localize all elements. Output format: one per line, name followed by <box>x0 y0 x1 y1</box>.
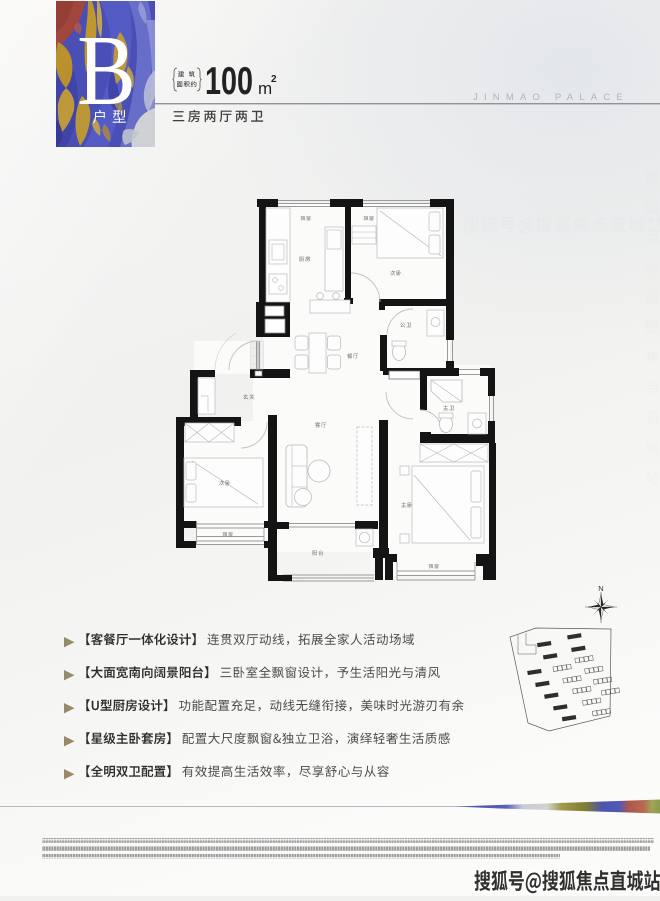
svg-text:JINMAO PALACE: JINMAO PALACE <box>473 92 629 103</box>
svg-text:100: 100 <box>205 60 253 103</box>
svg-text:2: 2 <box>271 74 277 85</box>
svg-text:B: B <box>77 15 136 126</box>
svg-text:N: N <box>598 584 603 593</box>
